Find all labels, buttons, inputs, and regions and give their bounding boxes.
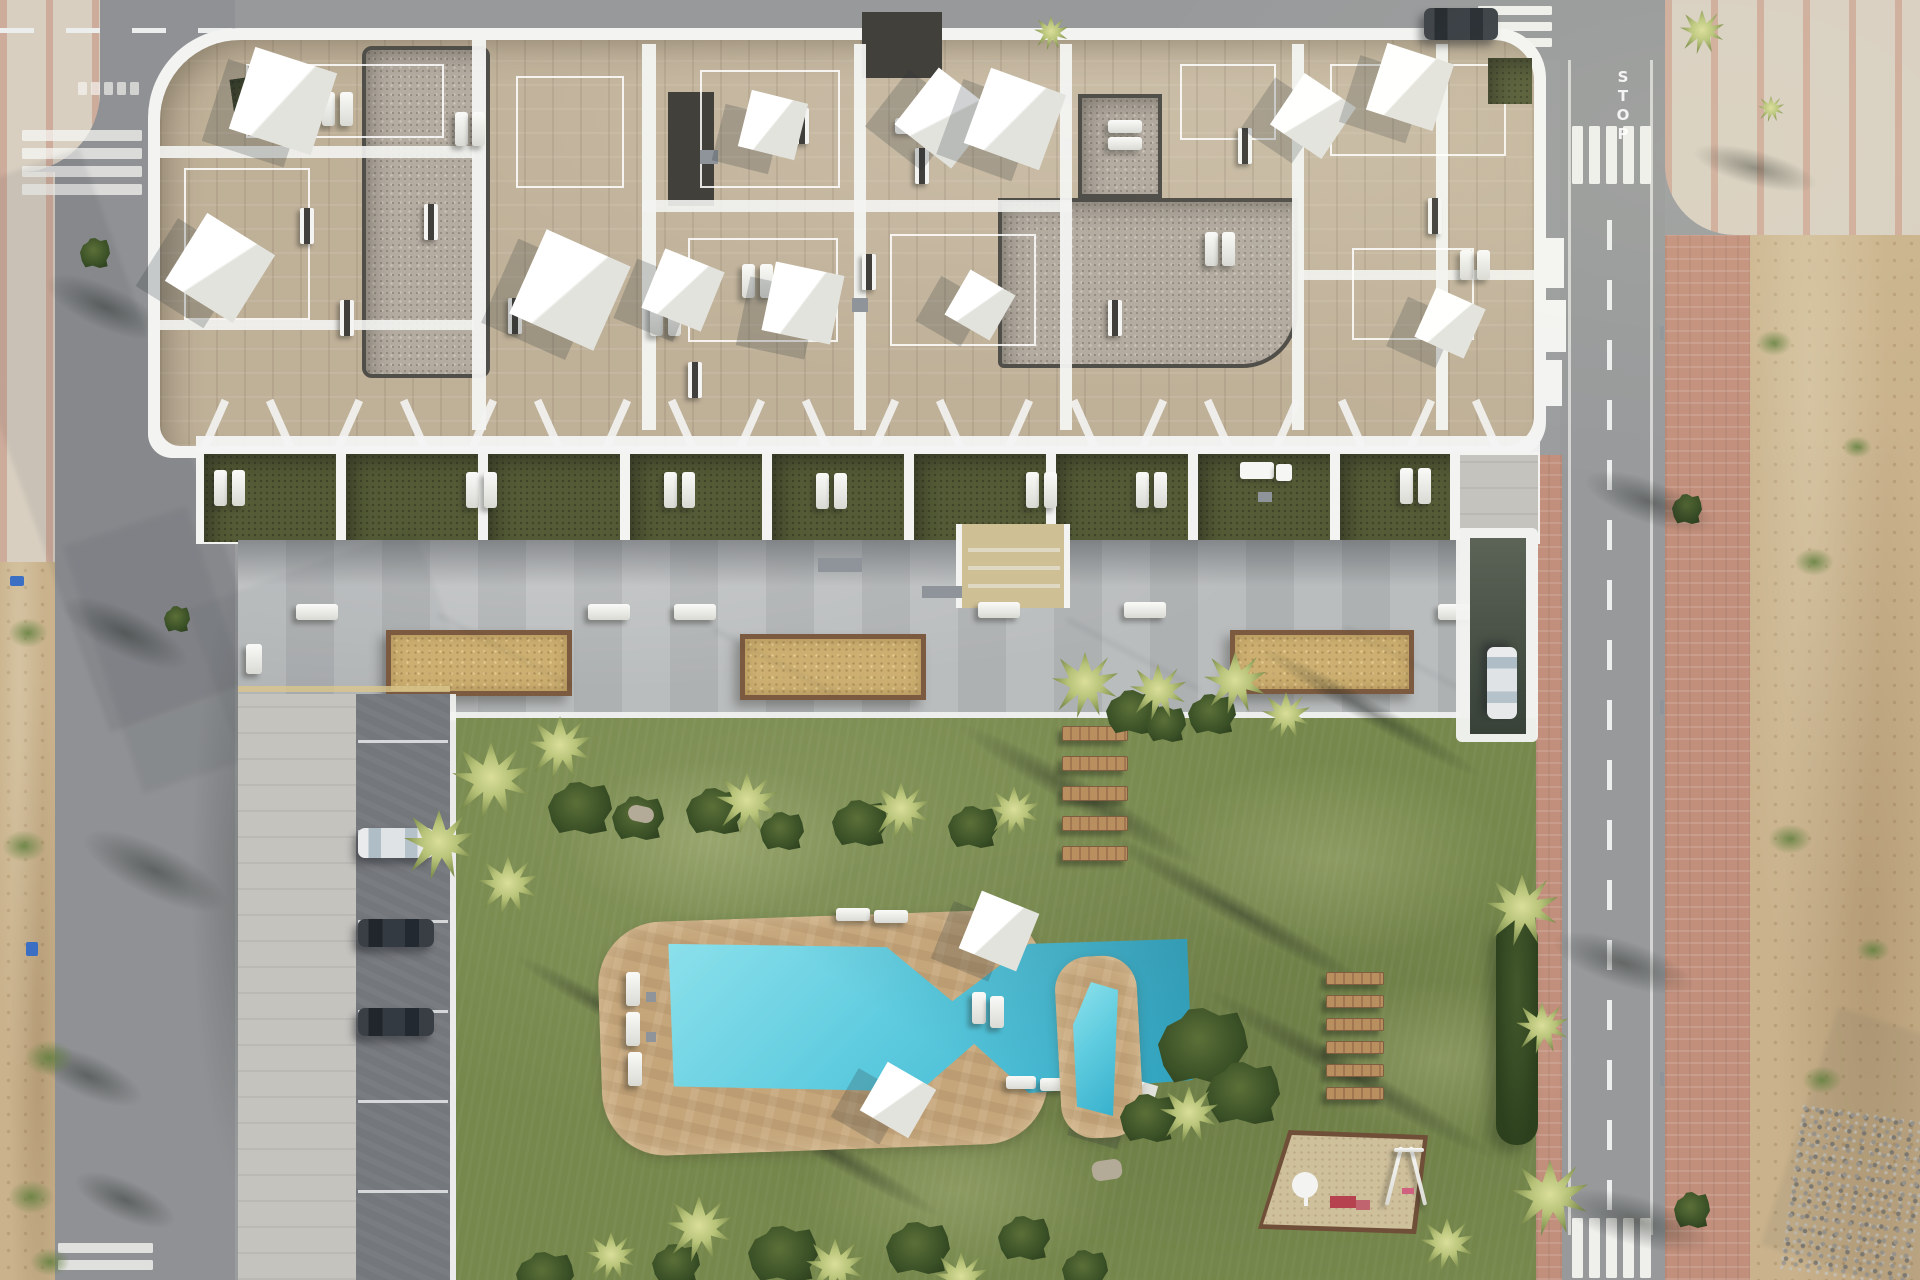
terrace-lounger (834, 473, 847, 509)
giveway-dash (130, 82, 139, 95)
parking-stall-line (358, 1100, 448, 1103)
entry-step-edge (968, 566, 1060, 570)
roof-table (852, 298, 868, 312)
plaza-bench (296, 604, 338, 620)
wood-plank-center (1062, 786, 1128, 801)
terrace-lounger (484, 472, 497, 508)
roof-skylight (300, 208, 314, 244)
terrace-lounger (682, 472, 695, 508)
roof-parapet-horizontal (160, 320, 474, 330)
plaza-bench (978, 602, 1020, 618)
dirt-strip-left (0, 562, 55, 1280)
playground-umbrella-stem (1304, 1196, 1308, 1206)
swing-crossbar (1394, 1148, 1424, 1152)
stop-road-marking: STOP (1594, 68, 1630, 144)
crosswalk-left-bar (22, 130, 142, 141)
roof-skylight (340, 300, 354, 336)
roof-skylight (915, 148, 929, 184)
blue-bin (26, 942, 38, 956)
roof-lounger (340, 92, 353, 126)
dirt-weed (1768, 824, 1812, 854)
dirt-weed (2, 830, 46, 862)
dirt-weed (8, 618, 48, 648)
dirt-weed (30, 1248, 70, 1276)
roof-lounger (455, 112, 468, 146)
terrace-lounger (664, 472, 677, 508)
roof-skylight (424, 204, 438, 240)
roof-parapet-vertical (642, 44, 656, 430)
red-curb-strip-garden (1536, 455, 1562, 1280)
giveway-dash (104, 82, 113, 95)
plaza-bench (246, 644, 262, 674)
entry-rail (1064, 524, 1070, 608)
aerial-render-scene: STOP (0, 0, 1920, 1280)
wood-plank-right (1326, 1064, 1384, 1077)
roof-lounger (742, 264, 755, 298)
deck-lounger (836, 908, 870, 921)
terrace-lounger (232, 470, 245, 506)
dirt-weed (8, 1180, 54, 1214)
wood-plank-right (1326, 1087, 1384, 1100)
street-light-pole (1660, 1072, 1664, 1086)
roof-parapet-vertical (472, 40, 486, 430)
roof-lounger (472, 112, 485, 146)
terrace-garden (488, 454, 620, 542)
parking-stall-line (358, 740, 448, 743)
blue-bin (10, 576, 24, 586)
parking-curb-sunlit (238, 686, 450, 692)
deck-lounger (626, 972, 640, 1006)
roof-parapet-vertical (854, 44, 866, 430)
crosswalk-left-bottom-bar (58, 1260, 153, 1270)
swing-seat (1402, 1188, 1414, 1194)
terrace-lounger (816, 473, 829, 509)
wood-plank-center (1062, 846, 1128, 861)
wood-plank-right (1326, 995, 1384, 1008)
giveway-dash (117, 82, 126, 95)
playground-umbrella (1292, 1172, 1318, 1198)
playground-bench-red (1330, 1196, 1356, 1208)
street-light-pole (1660, 700, 1664, 714)
wood-plank-right (1326, 1018, 1384, 1031)
parked-car-dark (358, 919, 434, 947)
terrace-lounger (466, 472, 479, 508)
sunlight-wash (1100, 0, 1920, 500)
plaza-bench (1124, 602, 1166, 618)
plaza-bench (674, 604, 716, 620)
shade-sail (761, 261, 844, 344)
entry-step-edge (968, 584, 1060, 588)
wood-plank-right (1326, 972, 1384, 985)
deck-lounger (972, 992, 986, 1024)
plaza-bench-dark (922, 586, 962, 598)
deck-lounger (626, 1012, 640, 1046)
deck-lounger (628, 1052, 642, 1086)
car-entering-ramp (1487, 647, 1517, 719)
terrace-garden (630, 454, 762, 542)
dirt-weed (1802, 1066, 1842, 1094)
dirt-weed (24, 1040, 74, 1076)
wood-plank-right (1326, 1041, 1384, 1054)
roof-table (700, 150, 718, 164)
giveway-dash (91, 82, 100, 95)
wood-plank-center (1062, 756, 1128, 771)
plaza-bench (588, 604, 630, 620)
terrace-lounger (214, 470, 227, 506)
terrace-lounger (1044, 472, 1057, 508)
roof-parapet-horizontal (160, 146, 474, 158)
deck-side-table (646, 992, 656, 1002)
deck-lounger (874, 910, 908, 923)
deck-lounger (990, 996, 1004, 1028)
parking-stall-line (358, 1190, 448, 1193)
dirt-weed (1794, 548, 1834, 576)
roof-parapet-horizontal (642, 200, 1072, 212)
giveway-dash (78, 82, 87, 95)
entry-step-edge (968, 548, 1060, 552)
lawn-light-patch (560, 760, 860, 920)
roof-skylight (862, 254, 876, 290)
roof-stairwell-dark (862, 12, 942, 78)
parked-car-dark (358, 1008, 434, 1036)
deck-side-table (646, 1032, 656, 1042)
crosswalk-left-bottom-bar (58, 1243, 153, 1253)
wood-plank-center (1062, 816, 1128, 831)
playground-toy (1356, 1200, 1370, 1210)
dirt-weed (1856, 938, 1890, 962)
walkway-west (238, 694, 356, 1280)
terrace-lounger (1026, 472, 1039, 508)
roof-parapet-outline (516, 76, 624, 188)
plaza-bench-dark (818, 558, 862, 572)
roof-skylight (688, 362, 702, 398)
deck-lounger (1006, 1076, 1036, 1089)
